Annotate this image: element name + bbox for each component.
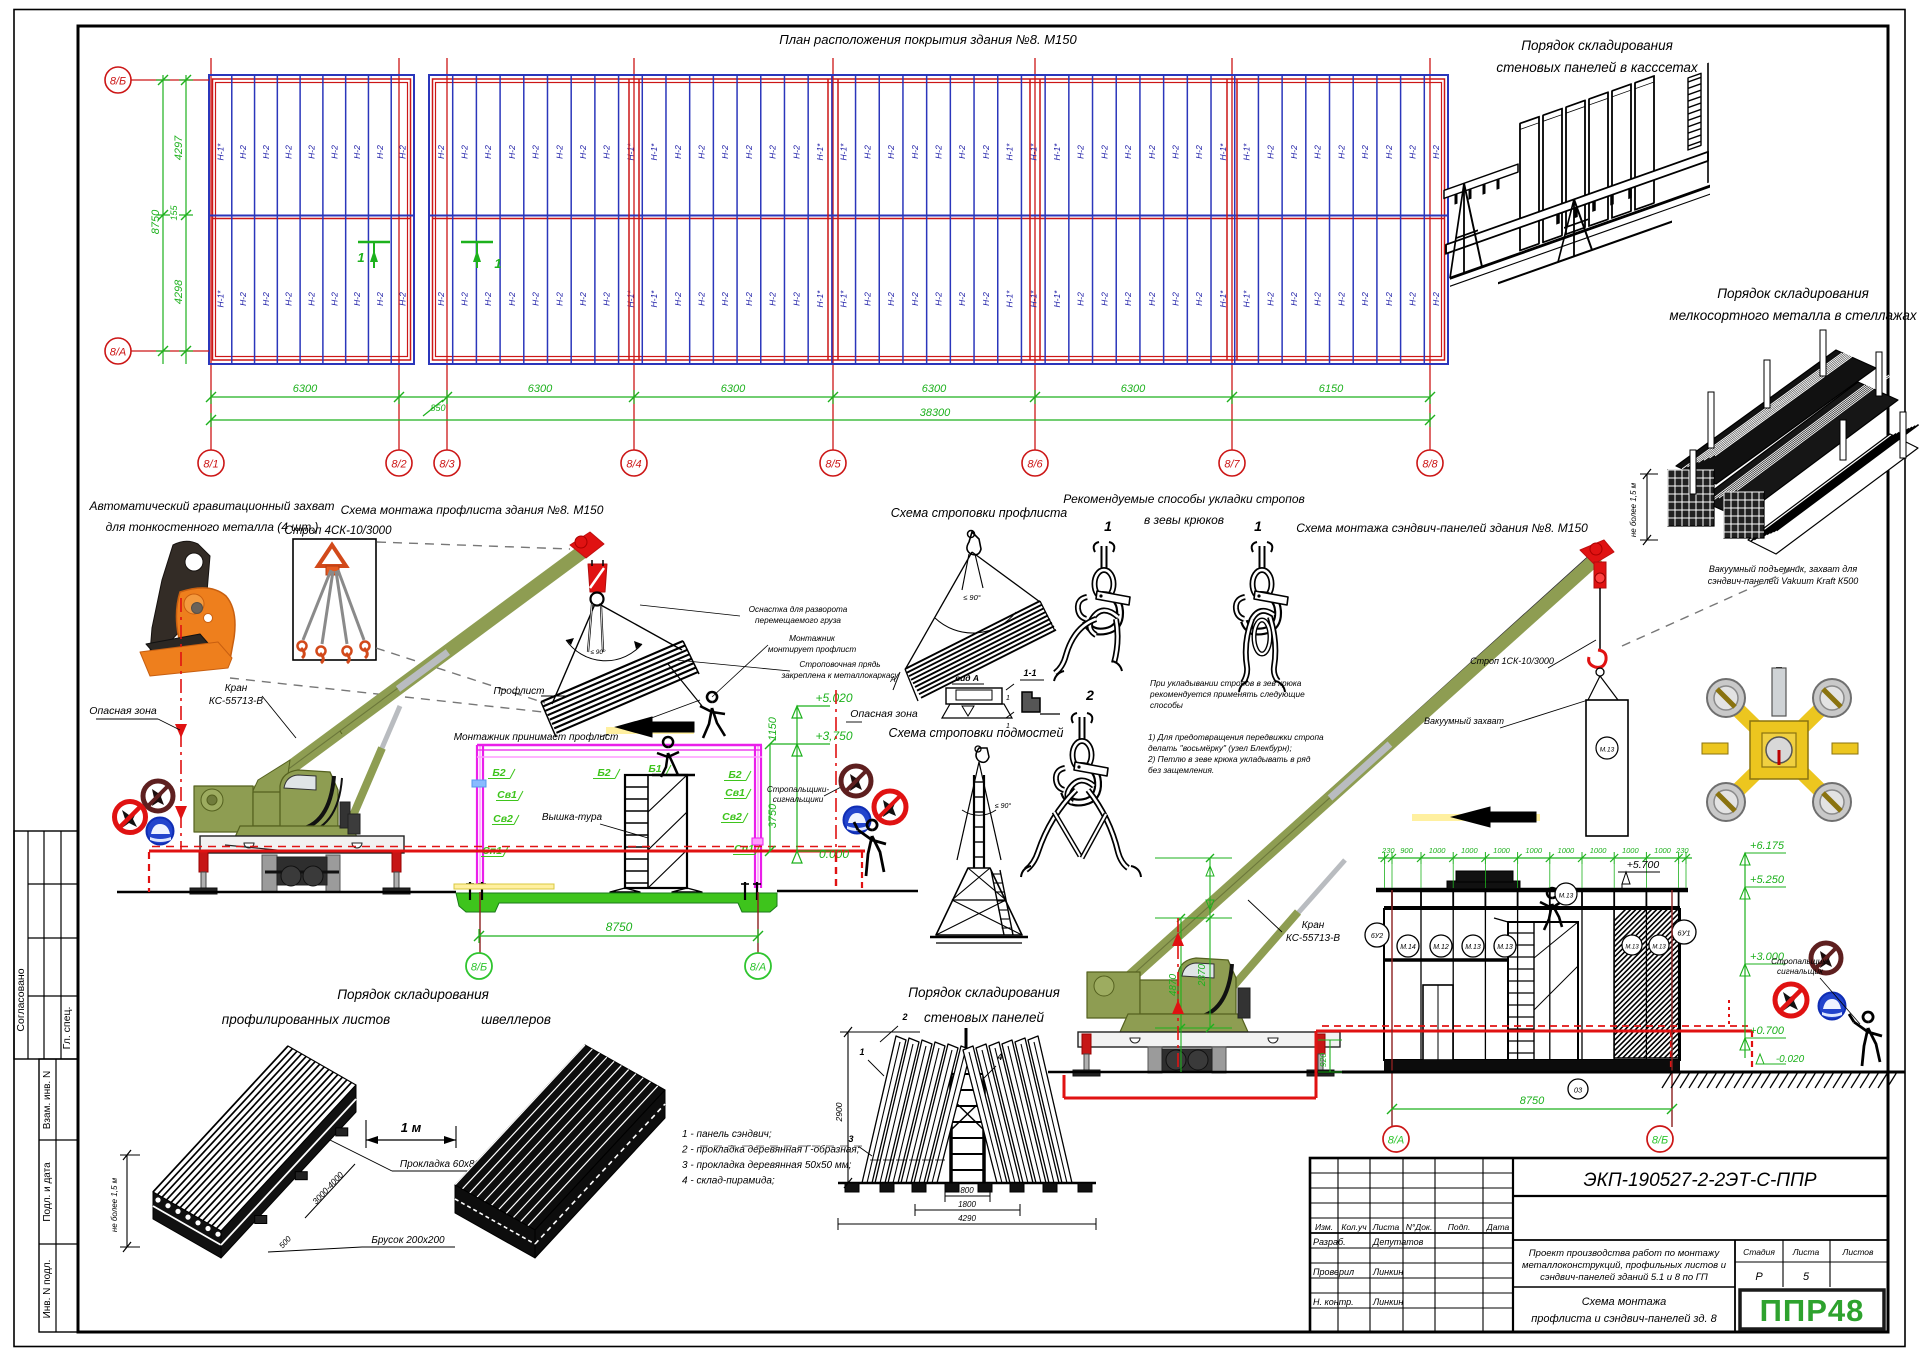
svg-text:монтирует профлист: монтирует профлист bbox=[768, 645, 857, 654]
svg-text:М.13: М.13 bbox=[1600, 747, 1615, 754]
svg-text:Н-2: Н-2 bbox=[284, 145, 294, 159]
svg-text:М.14: М.14 bbox=[1400, 944, 1416, 951]
svg-text:1-1: 1-1 bbox=[1023, 668, 1036, 678]
svg-text:1000: 1000 bbox=[1558, 846, 1576, 855]
svg-text:Н-1*: Н-1* bbox=[625, 143, 635, 161]
svg-text:8/6: 8/6 bbox=[1027, 459, 1043, 471]
svg-text:Н-2: Н-2 bbox=[768, 292, 778, 306]
svg-text:Н-2: Н-2 bbox=[744, 145, 754, 159]
svg-text:8/Б: 8/Б bbox=[110, 76, 126, 88]
svg-text:2900: 2900 bbox=[834, 1102, 844, 1122]
svg-text:8750: 8750 bbox=[150, 209, 162, 234]
svg-text:Н-2: Н-2 bbox=[307, 145, 317, 159]
svg-text:Н-2: Н-2 bbox=[1194, 292, 1204, 306]
svg-text:Н-1*: Н-1* bbox=[1052, 290, 1062, 308]
svg-text:1150: 1150 bbox=[767, 716, 779, 741]
svg-text:М.12: М.12 bbox=[1433, 944, 1449, 951]
svg-text:Н-1*: Н-1* bbox=[815, 290, 825, 308]
svg-text:стеновых панелей в касссетах: стеновых панелей в касссетах bbox=[1496, 60, 1699, 75]
svg-text:8/2: 8/2 bbox=[391, 459, 406, 471]
svg-text:Св2: Св2 bbox=[722, 811, 742, 823]
svg-text:Депутатов: Депутатов bbox=[1372, 1237, 1424, 1247]
svg-text:1: 1 bbox=[1006, 695, 1010, 702]
svg-text:Св2: Св2 bbox=[493, 813, 513, 825]
svg-text:0.000: 0.000 bbox=[819, 847, 849, 861]
svg-text:сэндвич-панелей Vakuum Kraft К: сэндвич-панелей Vakuum Kraft К500 bbox=[1708, 576, 1858, 586]
svg-text:Н-2: Н-2 bbox=[1076, 145, 1086, 159]
svg-text:1: 1 bbox=[1254, 518, 1262, 534]
svg-text:6У1: 6У1 bbox=[1677, 929, 1690, 938]
svg-text:Опасная зона: Опасная зона bbox=[850, 708, 918, 720]
svg-text:Вышка-тура: Вышка-тура bbox=[542, 812, 603, 823]
svg-text:Н-2: Н-2 bbox=[352, 292, 362, 306]
svg-text:Н-2: Н-2 bbox=[483, 145, 493, 159]
svg-text:Кол.уч: Кол.уч bbox=[1341, 1222, 1367, 1232]
svg-text:1 м: 1 м bbox=[401, 1120, 422, 1135]
svg-text:Согласовано: Согласовано bbox=[15, 968, 27, 1031]
svg-text:Н-2: Н-2 bbox=[1289, 145, 1299, 159]
svg-text:+3,750: +3,750 bbox=[815, 729, 852, 743]
svg-text:230: 230 bbox=[1675, 846, 1689, 855]
svg-text:Схема строповки профлиста: Схема строповки профлиста bbox=[891, 506, 1068, 520]
svg-text:1000: 1000 bbox=[1461, 846, 1479, 855]
svg-text:Н-2: Н-2 bbox=[531, 292, 541, 306]
svg-text:Н-1*: Н-1* bbox=[1005, 290, 1015, 308]
svg-text:профлиста и сэндвич-панелей зд: профлиста и сэндвич-панелей зд. 8 bbox=[1531, 1313, 1717, 1325]
svg-text:Н-2: Н-2 bbox=[1170, 145, 1180, 159]
svg-text:М.13: М.13 bbox=[1465, 944, 1481, 951]
svg-text:Н-2: Н-2 bbox=[1147, 145, 1157, 159]
svg-text:1000: 1000 bbox=[1622, 846, 1640, 855]
svg-text:Стропальщик-: Стропальщик- bbox=[1771, 957, 1829, 966]
svg-text:Брусок 200х200: Брусок 200х200 bbox=[371, 1235, 445, 1246]
svg-text:6150: 6150 bbox=[1319, 383, 1344, 395]
svg-text:≤ 90°: ≤ 90° bbox=[590, 648, 606, 656]
svg-text:Н-2: Н-2 bbox=[1384, 145, 1394, 159]
svg-text:Листа: Листа bbox=[1792, 1247, 1820, 1257]
svg-text:Н-2: Н-2 bbox=[238, 145, 248, 159]
svg-text:8/А: 8/А bbox=[750, 962, 767, 974]
svg-text:Н-2: Н-2 bbox=[375, 292, 385, 306]
svg-text:рекомендуется применять следую: рекомендуется применять следующие bbox=[1149, 689, 1305, 699]
svg-text:Н. контр.: Н. контр. bbox=[1313, 1297, 1354, 1307]
svg-text:Н-2: Н-2 bbox=[910, 145, 920, 159]
svg-text:Н-1*: Н-1* bbox=[625, 290, 635, 308]
svg-text:М.13: М.13 bbox=[1625, 945, 1639, 951]
svg-text:Н-2: Н-2 bbox=[1099, 292, 1109, 306]
svg-text:≤ 90°: ≤ 90° bbox=[963, 593, 981, 602]
svg-text:Св1: Св1 bbox=[725, 787, 745, 799]
svg-text:Н-2: Н-2 bbox=[957, 145, 967, 159]
svg-text:Н-2: Н-2 bbox=[981, 292, 991, 306]
svg-text:1) Для предотвращения перед: 1) Для предотвращения передвижки стропа bbox=[1148, 732, 1324, 742]
svg-text:Линкин: Линкин bbox=[1372, 1267, 1403, 1277]
svg-text:КС-55713-В: КС-55713-В bbox=[209, 696, 263, 707]
svg-text:Н-1*: Н-1* bbox=[815, 143, 825, 161]
svg-text:Н-2: Н-2 bbox=[934, 145, 944, 159]
svg-text:Н-2: Н-2 bbox=[1076, 292, 1086, 306]
svg-text:Н-2: Н-2 bbox=[1147, 292, 1157, 306]
svg-text:Н-2: Н-2 bbox=[791, 292, 801, 306]
svg-text:Вакуумный захват: Вакуумный захват bbox=[1424, 716, 1505, 726]
svg-text:стеновых панелей: стеновых панелей bbox=[924, 1010, 1044, 1025]
svg-text:не более 1,5 м: не более 1,5 м bbox=[1629, 482, 1638, 537]
svg-text:Н-2: Н-2 bbox=[1313, 292, 1323, 306]
svg-text:Стадия: Стадия bbox=[1743, 1247, 1775, 1257]
svg-text:Взам. инв. N: Взам. инв. N bbox=[42, 1071, 53, 1129]
svg-text:Н-2: Н-2 bbox=[329, 292, 339, 306]
svg-text:155: 155 bbox=[169, 205, 179, 221]
svg-text:Н-2: Н-2 bbox=[673, 292, 683, 306]
svg-text:Н-2: Н-2 bbox=[1431, 292, 1441, 306]
svg-text:Н-2: Н-2 bbox=[460, 292, 470, 306]
svg-text:Н-2: Н-2 bbox=[1407, 145, 1417, 159]
svg-text:Изм.: Изм. bbox=[1315, 1222, 1333, 1232]
svg-text:Н-2: Н-2 bbox=[578, 145, 588, 159]
svg-text:Профлист: Профлист bbox=[493, 685, 544, 697]
svg-text:1: 1 bbox=[859, 1047, 864, 1057]
svg-text:Н-2: Н-2 bbox=[673, 145, 683, 159]
svg-text:2) Петлю в зеве крюка укл: 2) Петлю в зеве крюка укладывать в ряд bbox=[1147, 754, 1311, 764]
svg-text:1800: 1800 bbox=[958, 1200, 976, 1209]
svg-text:Н-2: Н-2 bbox=[261, 145, 271, 159]
svg-text:Н-2: Н-2 bbox=[602, 292, 612, 306]
svg-text:Н-2: Н-2 bbox=[554, 145, 564, 159]
svg-text:N°Док.: N°Док. bbox=[1406, 1222, 1433, 1232]
svg-text:≤ 90°: ≤ 90° bbox=[995, 802, 1012, 810]
svg-text:Н-2: Н-2 bbox=[697, 292, 707, 306]
svg-text:Листа: Листа bbox=[1372, 1222, 1400, 1232]
svg-text:Н-2: Н-2 bbox=[1123, 145, 1133, 159]
svg-text:+0.700: +0.700 bbox=[1750, 1025, 1785, 1037]
svg-text:4298: 4298 bbox=[173, 279, 185, 304]
svg-text:Н-1*: Н-1* bbox=[1005, 143, 1015, 161]
svg-text:Н-2: Н-2 bbox=[238, 292, 248, 306]
svg-text:Н-2: Н-2 bbox=[768, 145, 778, 159]
svg-text:1: 1 bbox=[1104, 518, 1112, 534]
svg-text:Н-2: Н-2 bbox=[910, 292, 920, 306]
svg-text:Подл. и дата: Подл. и дата bbox=[42, 1162, 53, 1222]
svg-text:6300: 6300 bbox=[528, 383, 553, 395]
svg-text:1000: 1000 bbox=[1590, 846, 1608, 855]
svg-text:в зевы крюков: в зевы крюков bbox=[1144, 513, 1224, 527]
svg-text:Б1: Б1 bbox=[648, 763, 661, 775]
svg-text:Н-2: Н-2 bbox=[1360, 292, 1370, 306]
svg-text:Опасная зона: Опасная зона bbox=[89, 705, 157, 717]
svg-text:8/1: 8/1 bbox=[203, 459, 218, 471]
svg-text:2 - прокладка деревянная Г-о: 2 - прокладка деревянная Г-образная; bbox=[681, 1144, 860, 1156]
svg-text:Н-2: Н-2 bbox=[981, 145, 991, 159]
svg-text:Н-2: Н-2 bbox=[578, 292, 588, 306]
svg-text:6300: 6300 bbox=[922, 383, 947, 395]
svg-text:ЭКП-190527-2-2ЭТ-С-ППР: ЭКП-190527-2-2ЭТ-С-ППР bbox=[1583, 1170, 1816, 1191]
svg-text:Н-2: Н-2 bbox=[957, 292, 967, 306]
svg-text:Порядок складирования: Порядок складирования bbox=[337, 987, 489, 1002]
svg-text:Н-2: Н-2 bbox=[398, 292, 408, 306]
svg-text:не более 1,5 м: не более 1,5 м bbox=[110, 1177, 119, 1232]
svg-text:3750: 3750 bbox=[767, 803, 779, 828]
svg-text:Н-2: Н-2 bbox=[1194, 145, 1204, 159]
svg-text:Гл. спец.: Гл. спец. bbox=[61, 1007, 73, 1050]
svg-text:Н-2: Н-2 bbox=[531, 145, 541, 159]
svg-text:Н-2: Н-2 bbox=[284, 292, 294, 306]
svg-text:без защемления.: без защемления. bbox=[1148, 765, 1214, 775]
svg-text:Схема монтажа профлиста здания: Схема монтажа профлиста здания №8. М150 bbox=[341, 503, 604, 517]
svg-text:Линкин: Линкин bbox=[1372, 1297, 1403, 1307]
svg-text:М.13: М.13 bbox=[1652, 945, 1666, 951]
svg-text:швеллеров: швеллеров bbox=[481, 1012, 551, 1027]
svg-text:-0.020: -0.020 bbox=[1776, 1054, 1805, 1065]
svg-text:Н-2: Н-2 bbox=[744, 292, 754, 306]
svg-text:1 - панель сэндвич;: 1 - панель сэндвич; bbox=[682, 1129, 772, 1140]
svg-text:8/8: 8/8 bbox=[1422, 459, 1438, 471]
svg-text:Н-2: Н-2 bbox=[352, 145, 362, 159]
svg-text:1000: 1000 bbox=[1493, 846, 1511, 855]
svg-text:3 - прокладка деревянная 50х: 3 - прокладка деревянная 50х50 мм; bbox=[682, 1160, 852, 1171]
svg-text:4290: 4290 bbox=[958, 1214, 976, 1223]
svg-text:Н-2: Н-2 bbox=[1407, 292, 1417, 306]
svg-text:Н-2: Н-2 bbox=[1099, 145, 1109, 159]
svg-text:Н-2: Н-2 bbox=[1360, 145, 1370, 159]
svg-text:Н-2: Н-2 bbox=[886, 292, 896, 306]
svg-text:Схема монтажа сэндвич-панелей: Схема монтажа сэндвич-панелей здания №8.… bbox=[1296, 521, 1588, 535]
svg-text:Порядок складирования: Порядок складирования bbox=[1521, 38, 1673, 53]
svg-text:Н-2: Н-2 bbox=[886, 145, 896, 159]
svg-text:5: 5 bbox=[1803, 1271, 1810, 1283]
svg-text:Проект производства работ по м: Проект производства работ по монтажу bbox=[1529, 1248, 1721, 1259]
svg-text:делать "восьмёрку" (узел Блекб: делать "восьмёрку" (узел Блекбурн); bbox=[1148, 743, 1293, 753]
svg-text:900: 900 bbox=[1400, 846, 1413, 855]
svg-text:03: 03 bbox=[1574, 1086, 1583, 1095]
svg-text:мелкосортного металла в стелла: мелкосортного металла в стеллажах bbox=[1669, 308, 1917, 323]
svg-text:1: 1 bbox=[494, 256, 501, 271]
svg-text:Рекомендуемые способы укладки: Рекомендуемые способы укладки стропов bbox=[1063, 492, 1305, 506]
svg-text:2: 2 bbox=[1085, 687, 1094, 703]
svg-text:Св1: Св1 bbox=[497, 789, 517, 801]
svg-text:Н-2: Н-2 bbox=[720, 145, 730, 159]
svg-text:Н-2: Н-2 bbox=[1289, 292, 1299, 306]
svg-text:Схема монтажа: Схема монтажа bbox=[1582, 1296, 1667, 1308]
svg-text:перемещаемого груза: перемещаемого груза bbox=[755, 616, 841, 625]
svg-text:М.13: М.13 bbox=[1497, 944, 1513, 951]
svg-text:8/Б: 8/Б bbox=[1652, 1135, 1668, 1147]
svg-text:сигнальщики: сигнальщики bbox=[773, 795, 824, 804]
svg-text:Вакуумный подъемник, захват дл: Вакуумный подъемник, захват для bbox=[1709, 564, 1857, 574]
svg-text:Н-1*: Н-1* bbox=[649, 290, 659, 308]
svg-text:1: 1 bbox=[357, 250, 364, 265]
svg-text:4297: 4297 bbox=[173, 135, 185, 160]
svg-text:Н-1*: Н-1* bbox=[215, 143, 225, 161]
svg-text:Н-2: Н-2 bbox=[720, 292, 730, 306]
svg-text:Н-2: Н-2 bbox=[1265, 292, 1275, 306]
svg-text:Дата: Дата bbox=[1486, 1222, 1510, 1232]
svg-text:4: 4 bbox=[996, 1052, 1002, 1062]
svg-text:Н-1*: Н-1* bbox=[1242, 143, 1252, 161]
svg-text:Монтажник: Монтажник bbox=[789, 634, 836, 643]
svg-text:Н-2: Н-2 bbox=[697, 145, 707, 159]
svg-text:+5.700: +5.700 bbox=[1627, 859, 1660, 871]
svg-text:6300: 6300 bbox=[293, 383, 318, 395]
svg-text:Н-2: Н-2 bbox=[483, 292, 493, 306]
svg-text:+5.250: +5.250 bbox=[1750, 874, 1785, 886]
svg-text:Сп1: Сп1 bbox=[734, 843, 754, 855]
svg-text:М.13: М.13 bbox=[1559, 893, 1574, 900]
svg-text:Листов: Листов bbox=[1842, 1247, 1875, 1257]
svg-text:+6.175: +6.175 bbox=[1750, 840, 1785, 852]
svg-text:профилированных листов: профилированных листов bbox=[222, 1012, 390, 1027]
svg-text:8/А: 8/А bbox=[1388, 1135, 1405, 1147]
svg-text:Н-2: Н-2 bbox=[1336, 145, 1346, 159]
svg-text:6У2: 6У2 bbox=[1371, 933, 1383, 940]
svg-text:Б2: Б2 bbox=[597, 767, 610, 779]
svg-text:Н-2: Н-2 bbox=[307, 292, 317, 306]
svg-text:закреплена к металлокаркасу: закреплена к металлокаркасу bbox=[781, 671, 900, 680]
svg-text:Н-2: Н-2 bbox=[1336, 292, 1346, 306]
svg-text:Строповочная прядь: Строповочная прядь bbox=[799, 660, 880, 669]
svg-text:Схема строповки подмостей: Схема строповки подмостей bbox=[889, 726, 1064, 740]
svg-text:Н-2: Н-2 bbox=[1384, 292, 1394, 306]
svg-text:Н-1*: Н-1* bbox=[1242, 290, 1252, 308]
svg-text:вид А: вид А bbox=[955, 673, 979, 683]
svg-text:План расположения покрытия зда: План расположения покрытия здания №8. М1… bbox=[779, 32, 1077, 47]
svg-text:КС-55713-В: КС-55713-В bbox=[1286, 933, 1340, 944]
svg-text:Н-2: Н-2 bbox=[791, 145, 801, 159]
svg-text:8750: 8750 bbox=[606, 920, 633, 934]
svg-text:Н-2: Н-2 bbox=[1170, 292, 1180, 306]
svg-text:сэндвич-панелей зданий 5.1 и 8: сэндвич-панелей зданий 5.1 и 8 по ГП bbox=[1540, 1272, 1708, 1283]
svg-text:металлоконструкций, профильных: металлоконструкций, профильных листов и bbox=[1522, 1260, 1727, 1271]
svg-text:Н-2: Н-2 bbox=[398, 145, 408, 159]
svg-text:сигнальщик: сигнальщик bbox=[1777, 967, 1824, 976]
svg-text:ППР48: ППР48 bbox=[1760, 1293, 1865, 1328]
svg-text:1000: 1000 bbox=[1429, 846, 1447, 855]
svg-text:Прокладка 60х80: Прокладка 60х80 bbox=[400, 1159, 481, 1170]
svg-text:Н-2: Н-2 bbox=[862, 292, 872, 306]
svg-text:6300: 6300 bbox=[1121, 383, 1146, 395]
svg-text:Строп 4СК-10/3000: Строп 4СК-10/3000 bbox=[285, 525, 393, 537]
svg-text:2870: 2870 bbox=[1197, 963, 1208, 987]
svg-text:Оснастка для разворота: Оснастка для разворота bbox=[749, 605, 848, 614]
svg-text:6300: 6300 bbox=[721, 383, 746, 395]
svg-text:Н-2: Н-2 bbox=[261, 292, 271, 306]
svg-text:Инв. N подл.: Инв. N подл. bbox=[42, 1260, 53, 1319]
svg-text:способы: способы bbox=[1150, 700, 1183, 710]
svg-text:Р: Р bbox=[1755, 1271, 1763, 1283]
svg-text:1000: 1000 bbox=[1654, 846, 1672, 855]
svg-text:Н-2: Н-2 bbox=[507, 145, 517, 159]
svg-text:Б2: Б2 bbox=[492, 767, 505, 779]
svg-text:3: 3 bbox=[848, 1134, 853, 1144]
svg-text:При укладывании стропов в зев: При укладывании стропов в зев крюка bbox=[1150, 678, 1302, 688]
svg-text:Н-2: Н-2 bbox=[1123, 292, 1133, 306]
svg-text:800: 800 bbox=[960, 1186, 974, 1195]
svg-text:Монтажник принимает профлист: Монтажник принимает профлист bbox=[454, 731, 619, 743]
svg-text:Н-2: Н-2 bbox=[602, 145, 612, 159]
svg-text:Автоматический гравитационный: Автоматический гравитационный захват bbox=[88, 499, 334, 513]
svg-text:Н-2: Н-2 bbox=[862, 145, 872, 159]
svg-text:Н-2: Н-2 bbox=[436, 292, 446, 306]
svg-text:Порядок складирования: Порядок складирования bbox=[1717, 286, 1869, 301]
svg-text:38300: 38300 bbox=[920, 407, 951, 419]
svg-text:Н-2: Н-2 bbox=[375, 145, 385, 159]
svg-text:920: 920 bbox=[1318, 1053, 1328, 1067]
svg-text:Подп.: Подп. bbox=[1448, 1222, 1471, 1232]
svg-text:230: 230 bbox=[1381, 846, 1395, 855]
svg-text:8750: 8750 bbox=[1520, 1095, 1545, 1107]
svg-text:8/5: 8/5 bbox=[825, 459, 841, 471]
svg-text:2: 2 bbox=[901, 1012, 907, 1022]
svg-text:Н-1*: Н-1* bbox=[839, 290, 849, 308]
svg-text:8/7: 8/7 bbox=[1224, 459, 1240, 471]
svg-text:+5.020: +5.020 bbox=[815, 691, 852, 705]
svg-text:Проверил: Проверил bbox=[1313, 1267, 1354, 1277]
svg-text:Н-2: Н-2 bbox=[460, 145, 470, 159]
svg-text:Б2: Б2 bbox=[728, 769, 741, 781]
svg-text:8/А: 8/А bbox=[110, 347, 127, 359]
svg-text:Стропальщики-: Стропальщики- bbox=[767, 785, 830, 794]
svg-text:Разраб.: Разраб. bbox=[1313, 1237, 1346, 1247]
svg-text:Н-2: Н-2 bbox=[329, 145, 339, 159]
svg-text:Н-2: Н-2 bbox=[934, 292, 944, 306]
svg-text:А: А bbox=[889, 675, 895, 684]
svg-text:Н-2: Н-2 bbox=[1431, 145, 1441, 159]
svg-text:Н-1*: Н-1* bbox=[839, 143, 849, 161]
svg-text:8/3: 8/3 bbox=[439, 459, 455, 471]
svg-text:1000: 1000 bbox=[1525, 846, 1543, 855]
svg-text:8/4: 8/4 bbox=[626, 459, 641, 471]
svg-text:Н-2: Н-2 bbox=[507, 292, 517, 306]
svg-text:Н-2: Н-2 bbox=[436, 145, 446, 159]
svg-text:Кран: Кран bbox=[225, 683, 248, 694]
svg-text:4 - склад-пирамида;: 4 - склад-пирамида; bbox=[682, 1176, 775, 1187]
svg-text:Н-2: Н-2 bbox=[554, 292, 564, 306]
svg-text:Строп 1СК-10/3000: Строп 1СК-10/3000 bbox=[1470, 656, 1554, 666]
svg-text:Н-1*: Н-1* bbox=[649, 143, 659, 161]
svg-text:Н-1*: Н-1* bbox=[215, 290, 225, 308]
svg-text:Н-2: Н-2 bbox=[1313, 145, 1323, 159]
svg-text:Порядок складирования: Порядок складирования bbox=[908, 985, 1060, 1000]
svg-text:8/Б: 8/Б bbox=[471, 962, 487, 974]
svg-text:Н-1*: Н-1* bbox=[1052, 143, 1062, 161]
svg-text:Кран: Кран bbox=[1302, 920, 1325, 931]
svg-text:Н-2: Н-2 bbox=[1265, 145, 1275, 159]
